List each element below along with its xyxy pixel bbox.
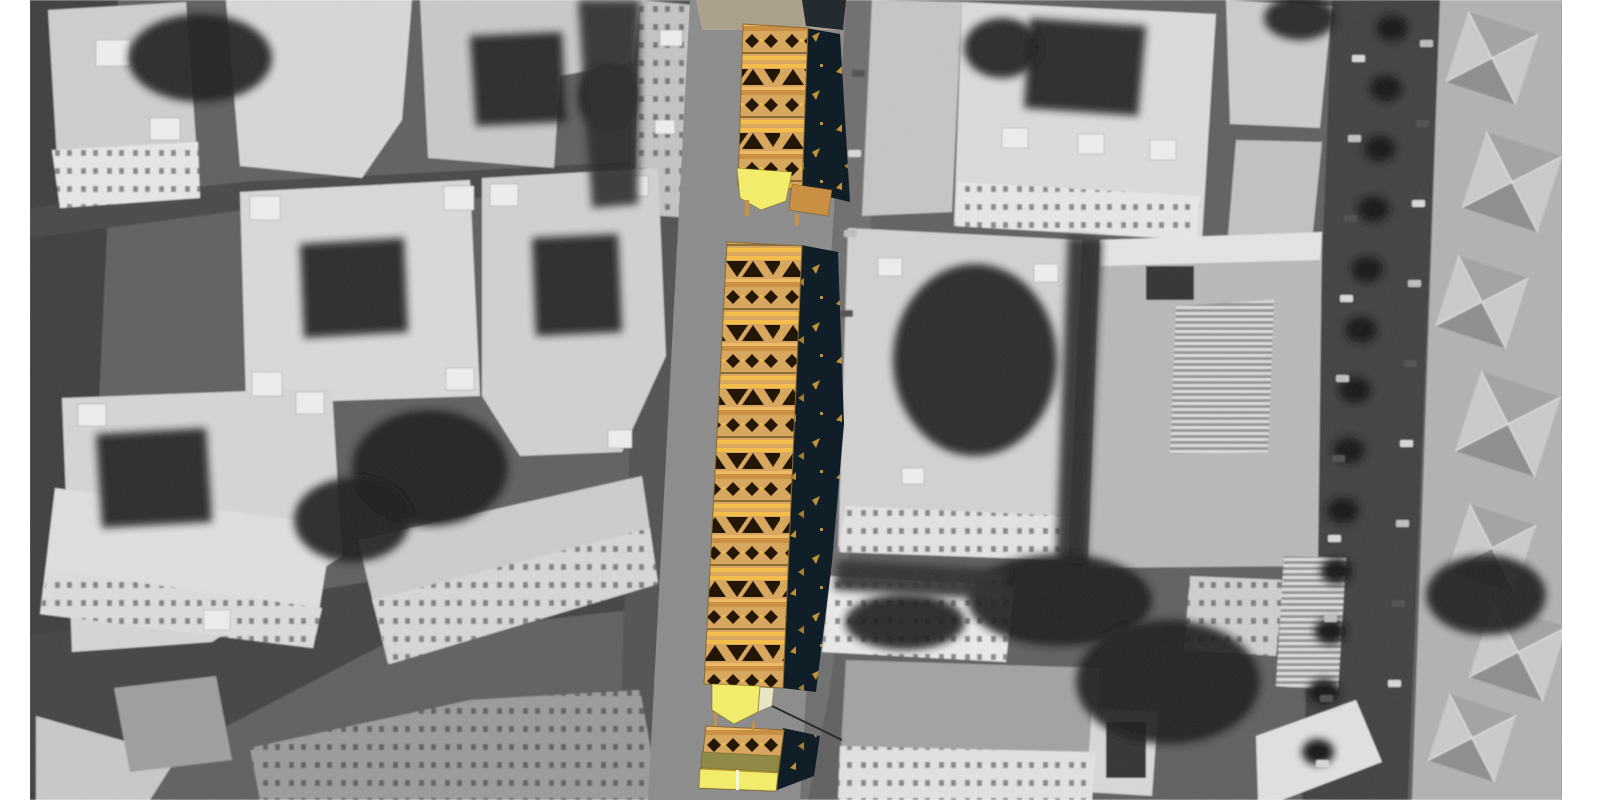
left-white-margin (0, 0, 30, 800)
cap-a-leg (795, 214, 799, 226)
canopy-roof-segment-a (738, 24, 808, 189)
cap-b-leg (752, 722, 755, 734)
end-cap-a-side (789, 184, 832, 216)
aerial-photo-canvas (0, 0, 1600, 800)
cap-b-leg (714, 712, 717, 726)
right-white-margin (1562, 0, 1600, 800)
cap-c-joint (736, 770, 739, 790)
cap-a-leg (745, 200, 749, 216)
olive-band-c (701, 752, 780, 772)
tree-shadow-n (802, 0, 846, 30)
aerial-photo (0, 0, 1600, 800)
